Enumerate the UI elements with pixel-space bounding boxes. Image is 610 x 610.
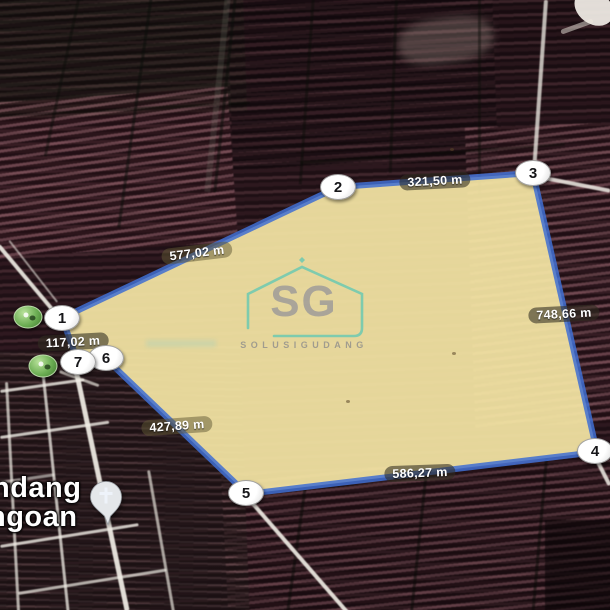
ground-speck [450,148,454,151]
vertex-marker-4[interactable]: 4 [577,438,610,464]
ground-speck [452,352,456,355]
poi-glyph [45,365,51,370]
place-label-line1: ndang [0,474,82,503]
church-pin-icon[interactable] [86,478,126,528]
vertex-marker-2[interactable]: 2 [320,174,356,200]
ground-speck [346,400,350,403]
satellite-map-screenshot: SG SOLUSIGUDANG ndang ngoan 577,02 m 321… [0,0,610,610]
poi-highlight [24,313,29,318]
vertex-marker-7[interactable]: 7 [60,349,96,375]
place-label-line2: ngoan [0,503,78,532]
distance-label: 586,27 m [384,464,456,482]
poi-glyph [30,316,36,321]
green-poi-icon[interactable] [14,306,43,329]
green-poi-icon[interactable] [29,355,58,378]
vertex-marker-1[interactable]: 1 [44,305,80,331]
vertex-marker-5[interactable]: 5 [228,480,264,506]
ground-smudge [146,340,216,347]
watermark-logo-text: SG [270,277,338,326]
watermark: SG SOLUSIGUDANG [238,256,370,356]
poi-highlight [39,362,44,367]
watermark-brand-text: SOLUSIGUDANG [238,340,370,350]
vertex-marker-3[interactable]: 3 [515,160,551,186]
